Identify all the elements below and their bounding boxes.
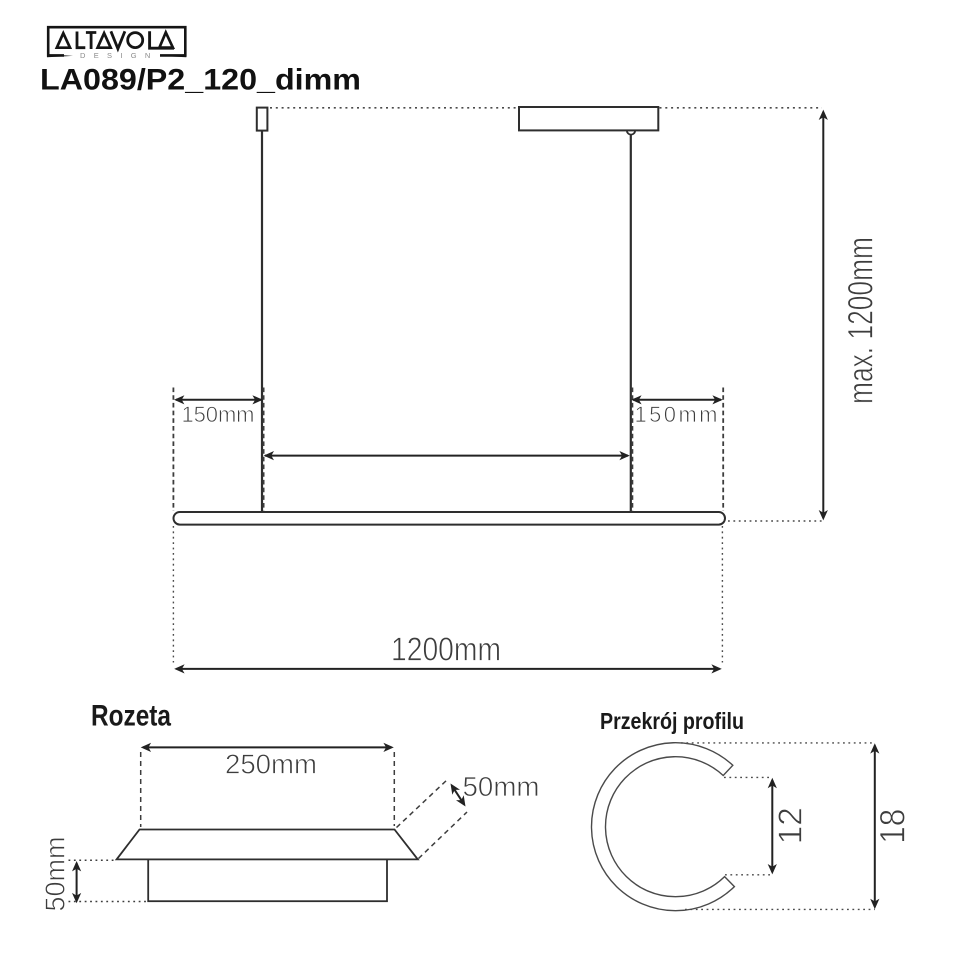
svg-text:18: 18 — [873, 809, 912, 844]
svg-text:LA089/P2_120_dimm: LA089/P2_120_dimm — [40, 64, 361, 97]
svg-text:250mm: 250mm — [225, 749, 317, 780]
svg-text:DESIGN: DESIGN — [80, 51, 159, 60]
svg-text:50mm: 50mm — [463, 771, 540, 802]
svg-text:1200mm: 1200mm — [391, 631, 501, 668]
svg-text:50mm: 50mm — [40, 837, 71, 912]
svg-text:Przekrój profilu: Przekrój profilu — [600, 708, 744, 734]
svg-text:12: 12 — [772, 807, 809, 844]
svg-text:Rozeta: Rozeta — [91, 700, 171, 733]
svg-text:max. 1200mm: max. 1200mm — [841, 237, 880, 404]
svg-text:150mm: 150mm — [182, 402, 255, 427]
